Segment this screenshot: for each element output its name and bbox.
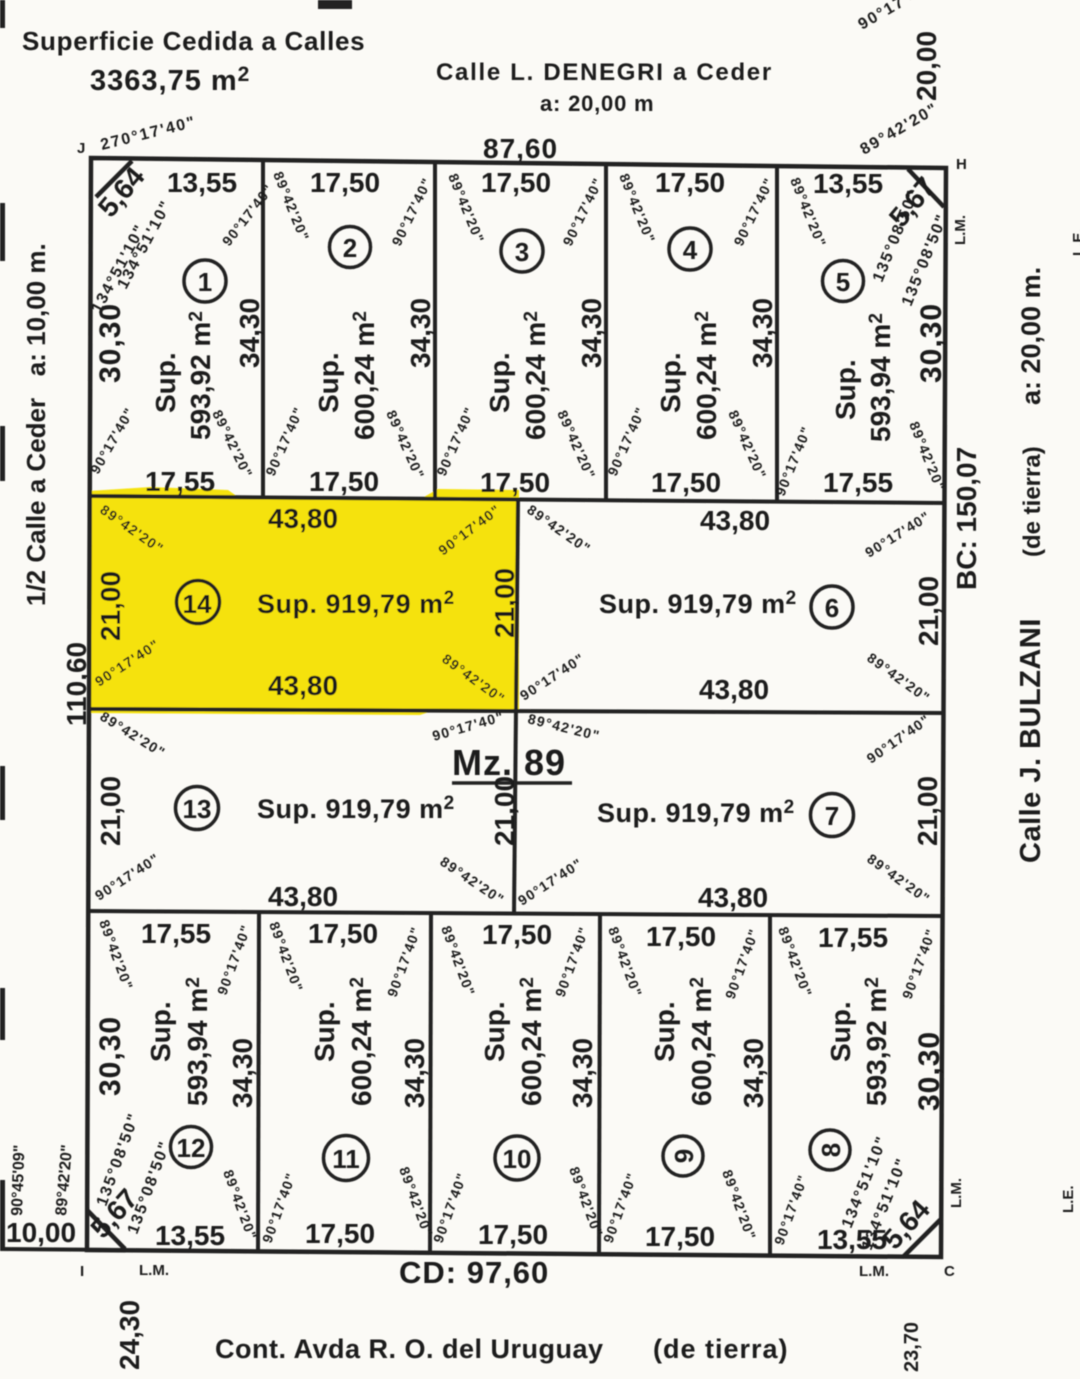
svg-text:13,55: 13,55 bbox=[813, 168, 883, 199]
svg-text:23,70: 23,70 bbox=[901, 1322, 923, 1372]
svg-text:34,30: 34,30 bbox=[227, 1038, 258, 1108]
svg-text:H: H bbox=[956, 156, 967, 173]
svg-text:90°45'09": 90°45'09" bbox=[9, 1144, 28, 1216]
svg-text:30,30: 30,30 bbox=[94, 1016, 127, 1096]
svg-text:2: 2 bbox=[343, 233, 357, 263]
svg-text:13,55: 13,55 bbox=[167, 167, 237, 198]
svg-text:(de tierra): (de tierra) bbox=[1019, 446, 1046, 557]
svg-text:11: 11 bbox=[332, 1144, 360, 1174]
svg-text:3363,75 m2: 3363,75 m2 bbox=[90, 63, 250, 97]
svg-text:CD: 97,60: CD: 97,60 bbox=[399, 1255, 549, 1290]
svg-text:593,92 m2: 593,92 m2 bbox=[185, 311, 216, 440]
svg-text:I: I bbox=[80, 1263, 84, 1280]
svg-text:13,55: 13,55 bbox=[155, 1220, 225, 1251]
svg-text:17,50: 17,50 bbox=[309, 466, 379, 497]
svg-text:L.E.: L.E. bbox=[1070, 228, 1080, 256]
svg-text:17,50: 17,50 bbox=[310, 167, 380, 198]
svg-text:1: 1 bbox=[198, 267, 212, 297]
svg-text:17,50: 17,50 bbox=[646, 921, 716, 952]
svg-text:Calle J. BULZANI: Calle J. BULZANI bbox=[1015, 618, 1047, 863]
svg-text:593,92 m2: 593,92 m2 bbox=[861, 977, 892, 1106]
svg-text:34,30: 34,30 bbox=[747, 298, 778, 368]
svg-text:600,24 m2: 600,24 m2 bbox=[349, 311, 380, 440]
svg-text:BC: 150,07: BC: 150,07 bbox=[951, 447, 982, 590]
svg-text:43,80: 43,80 bbox=[698, 882, 768, 913]
svg-text:13: 13 bbox=[183, 794, 212, 824]
svg-text:5: 5 bbox=[836, 267, 850, 297]
svg-text:7: 7 bbox=[825, 801, 839, 831]
svg-text:17,50: 17,50 bbox=[655, 167, 725, 198]
svg-text:17,55: 17,55 bbox=[823, 467, 893, 498]
svg-text:L.M.: L.M. bbox=[952, 215, 969, 245]
svg-text:Sup.: Sup. bbox=[479, 1001, 510, 1062]
svg-text:34,30: 34,30 bbox=[405, 298, 436, 368]
svg-text:43,80: 43,80 bbox=[268, 670, 338, 701]
svg-text:43,80: 43,80 bbox=[700, 505, 770, 536]
svg-text:21,00: 21,00 bbox=[912, 776, 943, 846]
svg-text:593,94 m2: 593,94 m2 bbox=[182, 977, 213, 1106]
svg-text:Sup.: Sup. bbox=[830, 359, 861, 420]
svg-text:600,24 m2: 600,24 m2 bbox=[516, 977, 547, 1106]
svg-text:8: 8 bbox=[816, 1143, 846, 1157]
svg-text:Sup.: Sup. bbox=[649, 1001, 680, 1062]
svg-text:593,94 m2: 593,94 m2 bbox=[865, 313, 896, 442]
svg-text:21,00: 21,00 bbox=[489, 776, 520, 846]
svg-text:34,30: 34,30 bbox=[234, 298, 265, 368]
svg-text:34,30: 34,30 bbox=[576, 298, 607, 368]
svg-text:600,24 m2: 600,24 m2 bbox=[346, 977, 377, 1106]
svg-text:14: 14 bbox=[183, 589, 212, 619]
svg-text:43,80: 43,80 bbox=[268, 881, 338, 912]
svg-text:Sup.: Sup. bbox=[309, 1001, 340, 1062]
svg-text:21,00: 21,00 bbox=[95, 571, 126, 641]
svg-text:(de tierra): (de tierra) bbox=[653, 1334, 789, 1364]
svg-text:17,50: 17,50 bbox=[478, 1219, 548, 1250]
svg-text:17,50: 17,50 bbox=[482, 919, 552, 950]
svg-text:17,50: 17,50 bbox=[651, 467, 721, 498]
svg-text:J: J bbox=[77, 140, 85, 157]
svg-text:Sup. 919,79 m2: Sup. 919,79 m2 bbox=[257, 793, 455, 824]
svg-text:30,30: 30,30 bbox=[913, 1031, 946, 1111]
svg-text:Sup.: Sup. bbox=[145, 1001, 176, 1062]
svg-text:L.M.: L.M. bbox=[859, 1263, 889, 1280]
svg-text:6: 6 bbox=[825, 593, 839, 623]
svg-text:21,00: 21,00 bbox=[489, 568, 520, 638]
svg-text:17,50: 17,50 bbox=[645, 1221, 715, 1252]
svg-text:34,30: 34,30 bbox=[399, 1038, 430, 1108]
svg-text:10: 10 bbox=[503, 1144, 532, 1174]
svg-text:87,60: 87,60 bbox=[483, 133, 558, 164]
svg-text:Sup.: Sup. bbox=[150, 352, 181, 413]
svg-text:43,80: 43,80 bbox=[268, 503, 338, 534]
svg-text:Sup.: Sup. bbox=[825, 1001, 856, 1062]
svg-text:Sup.: Sup. bbox=[655, 352, 686, 413]
svg-text:Superficie Cedida a Calles: Superficie Cedida a Calles bbox=[22, 26, 365, 56]
svg-text:12: 12 bbox=[177, 1133, 206, 1163]
svg-text:17,50: 17,50 bbox=[308, 918, 378, 949]
svg-text:C: C bbox=[944, 1263, 955, 1280]
svg-text:17,50: 17,50 bbox=[305, 1218, 375, 1249]
svg-text:1/2 Calle a Ceder a: 10,00 m: 1/2 Calle a Ceder a: 10,00 m. bbox=[21, 243, 51, 606]
svg-text:Sup.: Sup. bbox=[313, 352, 344, 413]
svg-text:17,55: 17,55 bbox=[818, 922, 888, 953]
svg-text:17,50: 17,50 bbox=[480, 467, 550, 498]
svg-text:L.M.: L.M. bbox=[139, 1262, 169, 1279]
svg-text:17,50: 17,50 bbox=[481, 167, 551, 198]
svg-text:20,00: 20,00 bbox=[911, 31, 942, 101]
svg-text:a: 20,00 m.: a: 20,00 m. bbox=[1016, 267, 1046, 405]
svg-text:Calle L. DENEGRI a Ceder: Calle L. DENEGRI a Ceder bbox=[436, 59, 773, 86]
svg-text:24,30: 24,30 bbox=[114, 1300, 145, 1370]
svg-text:600,24 m2: 600,24 m2 bbox=[691, 311, 722, 440]
svg-text:600,24 m2: 600,24 m2 bbox=[686, 977, 717, 1106]
svg-text:30,30: 30,30 bbox=[915, 303, 948, 383]
svg-text:600,24 m2: 600,24 m2 bbox=[520, 311, 551, 440]
svg-text:43,80: 43,80 bbox=[699, 674, 769, 705]
svg-text:Sup. 919,79 m2: Sup. 919,79 m2 bbox=[257, 588, 455, 619]
svg-text:17,55: 17,55 bbox=[141, 918, 211, 949]
svg-text:34,30: 34,30 bbox=[738, 1038, 769, 1108]
svg-text:9: 9 bbox=[669, 1149, 699, 1163]
svg-text:L.M.: L.M. bbox=[948, 1178, 965, 1208]
svg-text:34,30: 34,30 bbox=[567, 1038, 598, 1108]
svg-text:Sup.: Sup. bbox=[484, 352, 515, 413]
svg-text:10,00: 10,00 bbox=[6, 1217, 76, 1248]
svg-text:a: 20,00 m: a: 20,00 m bbox=[540, 91, 654, 116]
svg-text:17,55: 17,55 bbox=[145, 466, 215, 497]
svg-text:Sup. 919,79 m2: Sup. 919,79 m2 bbox=[597, 797, 795, 828]
svg-text:21,00: 21,00 bbox=[95, 776, 126, 846]
svg-text:Sup. 919,79 m2: Sup. 919,79 m2 bbox=[599, 588, 797, 619]
svg-text:Cont. Avda R. O. del Uruguay: Cont. Avda R. O. del Uruguay bbox=[215, 1334, 604, 1364]
svg-text:L.E.: L.E. bbox=[1060, 1185, 1077, 1213]
svg-text:4: 4 bbox=[683, 235, 698, 265]
svg-text:30,30: 30,30 bbox=[94, 303, 127, 383]
svg-text:21,00: 21,00 bbox=[913, 576, 944, 646]
svg-text:3: 3 bbox=[515, 237, 529, 267]
